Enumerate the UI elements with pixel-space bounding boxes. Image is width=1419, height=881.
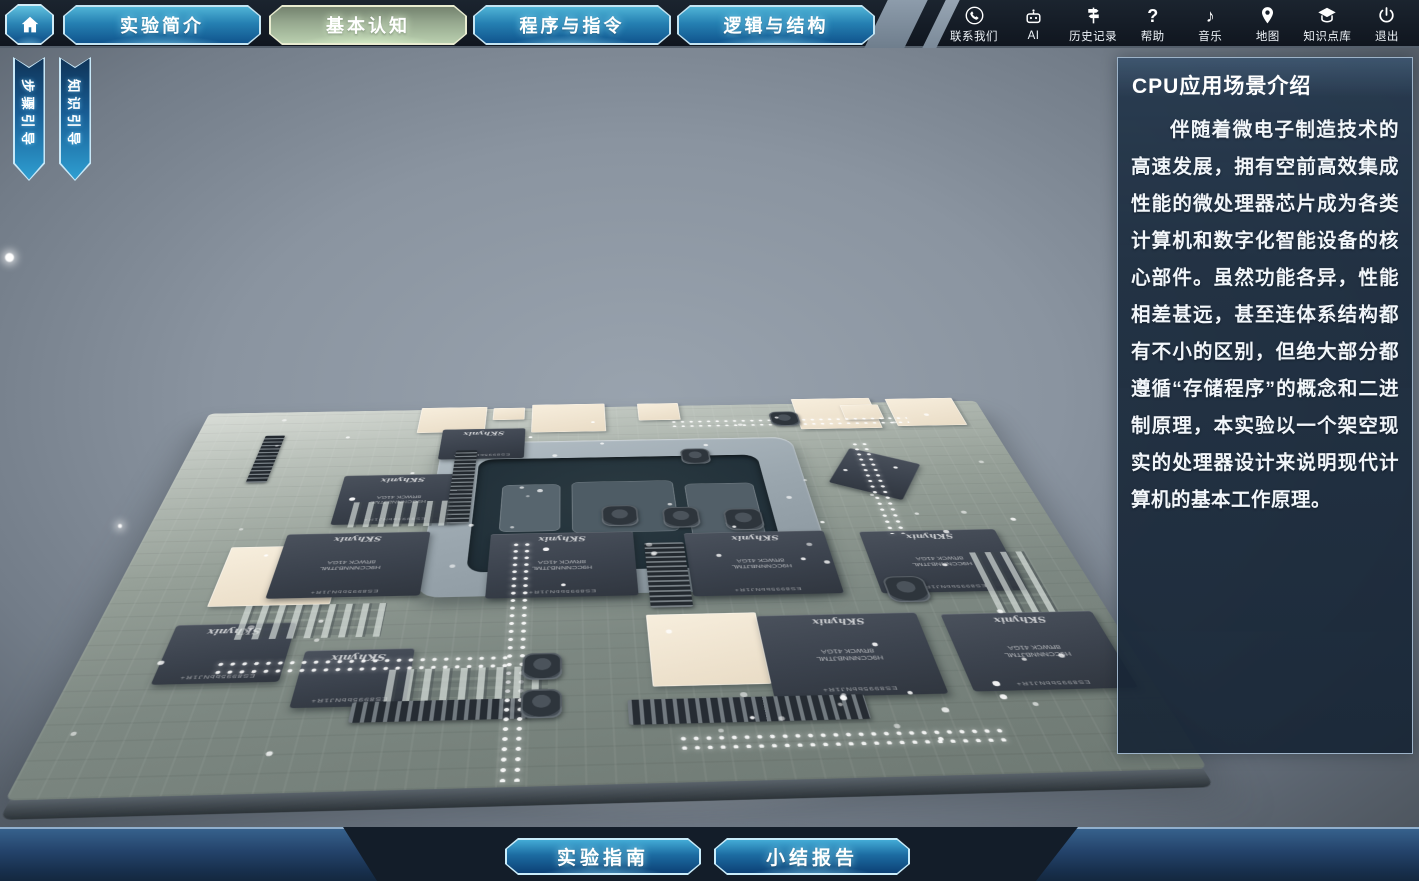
inductor-coil: [680, 448, 712, 464]
thermal-pad: [646, 612, 771, 686]
cpu-die-small: [499, 484, 561, 532]
thermal-pad: [493, 408, 526, 420]
sparkle: [118, 524, 122, 528]
exit-button[interactable]: 退出: [1363, 5, 1411, 44]
summary-report-label: 小结报告: [716, 840, 908, 873]
knowledge-guide-ribbon[interactable]: 知识引导: [59, 57, 91, 181]
tab-label: 程序与指令: [475, 7, 669, 43]
map-button[interactable]: 地图: [1244, 5, 1292, 44]
memory-chip: ES8995bbNJ1R+H9CCNNNBJTML8RWCK 41GASKhyn…: [684, 530, 844, 596]
experiment-guide-label: 实验指南: [507, 840, 699, 873]
map-pin-icon: [1257, 5, 1278, 27]
contact-us-label: 联系我们: [950, 28, 998, 44]
tab-basic-cognition[interactable]: 基本认知: [269, 5, 467, 45]
motherboard-3d-viewport[interactable]: ES8995bbNJ1R+H9CCNNNBJTML8RWCK 41GASKhyn…: [5, 401, 1207, 801]
step-guide-ribbon[interactable]: 步骤引导: [13, 57, 45, 181]
power-exit-icon: [1376, 5, 1397, 27]
memory-chip: ES8995bbNJ1R+H9CCNNNBJTML8RWCK 41GASKhyn…: [265, 532, 430, 599]
knowledge-base-button[interactable]: 知识点库: [1301, 5, 1353, 44]
tab-label: 基本认知: [271, 7, 465, 43]
home-button[interactable]: [5, 4, 54, 45]
help-question-icon: ?: [1147, 5, 1158, 27]
ai-button[interactable]: AI: [1010, 7, 1058, 42]
panel-header: CPU应用场景介绍: [1118, 58, 1412, 104]
tab-label: 逻辑与结构: [679, 7, 873, 43]
utility-icon-row: 联系我们 AI 历史记录 ? 帮助 ♪ 音乐: [948, 0, 1411, 48]
home-icon: [19, 14, 41, 36]
contact-phone-icon: [964, 5, 985, 27]
knowledge-guide-label: 知识引导: [65, 79, 85, 159]
music-button[interactable]: ♪ 音乐: [1186, 5, 1234, 44]
bottom-bar: [0, 827, 1419, 881]
inductor-coil: [601, 505, 639, 526]
memory-chip: ES8995bbNJ1R+H9CCNNNBJTML8RWCK 41GASKhyn…: [756, 612, 948, 697]
ai-robot-icon: [1023, 7, 1044, 29]
experiment-guide-button[interactable]: 实验指南: [505, 838, 701, 875]
tab-logic-structure[interactable]: 逻辑与结构: [677, 5, 875, 45]
thermal-pad: [637, 403, 681, 420]
capacitor-cluster: [234, 603, 387, 640]
map-label: 地图: [1256, 28, 1280, 44]
cpu-info-panel: CPU应用场景介绍 伴随着微电子制造技术的高速发展，拥有空前高效集成性能的微处理…: [1117, 57, 1413, 754]
contact-us-button[interactable]: 联系我们: [948, 5, 1000, 44]
tab-label: 实验简介: [65, 7, 259, 43]
knowledge-base-icon: [1316, 5, 1338, 27]
help-button[interactable]: ? 帮助: [1129, 5, 1177, 44]
thermal-pad: [531, 404, 606, 433]
panel-body-text: 伴随着微电子制造技术的高速发展，拥有空前高效集成性能的微处理器芯片成为各类计算机…: [1118, 104, 1412, 519]
history-signpost-icon: [1083, 5, 1104, 27]
inductor-coil: [768, 411, 801, 426]
history-button[interactable]: 历史记录: [1067, 5, 1119, 44]
tab-programs-instructions[interactable]: 程序与指令: [473, 5, 671, 45]
capacitor-cluster: [347, 501, 453, 528]
ai-label: AI: [1028, 30, 1040, 42]
help-label: 帮助: [1141, 28, 1165, 44]
inductor-coil: [723, 508, 766, 530]
music-label: 音乐: [1198, 28, 1222, 44]
application-window: ES8995bbNJ1R+H9CCNNNBJTML8RWCK 41GASKhyn…: [0, 0, 1419, 881]
inductor-coil: [522, 653, 562, 681]
step-guide-label: 步骤引导: [19, 79, 39, 159]
sparkle: [5, 253, 14, 262]
summary-report-button[interactable]: 小结报告: [714, 838, 910, 875]
exit-label: 退出: [1375, 28, 1399, 44]
memory-chip: ES8995bbNJ1R+H9CCNNNBJTML8RWCK 41GASKhyn…: [438, 428, 525, 459]
music-note-icon: ♪: [1206, 5, 1215, 27]
panel-title: CPU应用场景介绍: [1132, 70, 1398, 100]
top-navigation-bar: 实验简介 基本认知 程序与指令 逻辑与结构 联系我们 AI: [0, 0, 1419, 48]
inductor-coil: [520, 689, 562, 719]
knowledge-base-label: 知识点库: [1303, 28, 1351, 44]
inductor-coil: [662, 507, 701, 528]
tab-experiment-intro[interactable]: 实验简介: [63, 5, 261, 45]
history-label: 历史记录: [1069, 28, 1117, 44]
